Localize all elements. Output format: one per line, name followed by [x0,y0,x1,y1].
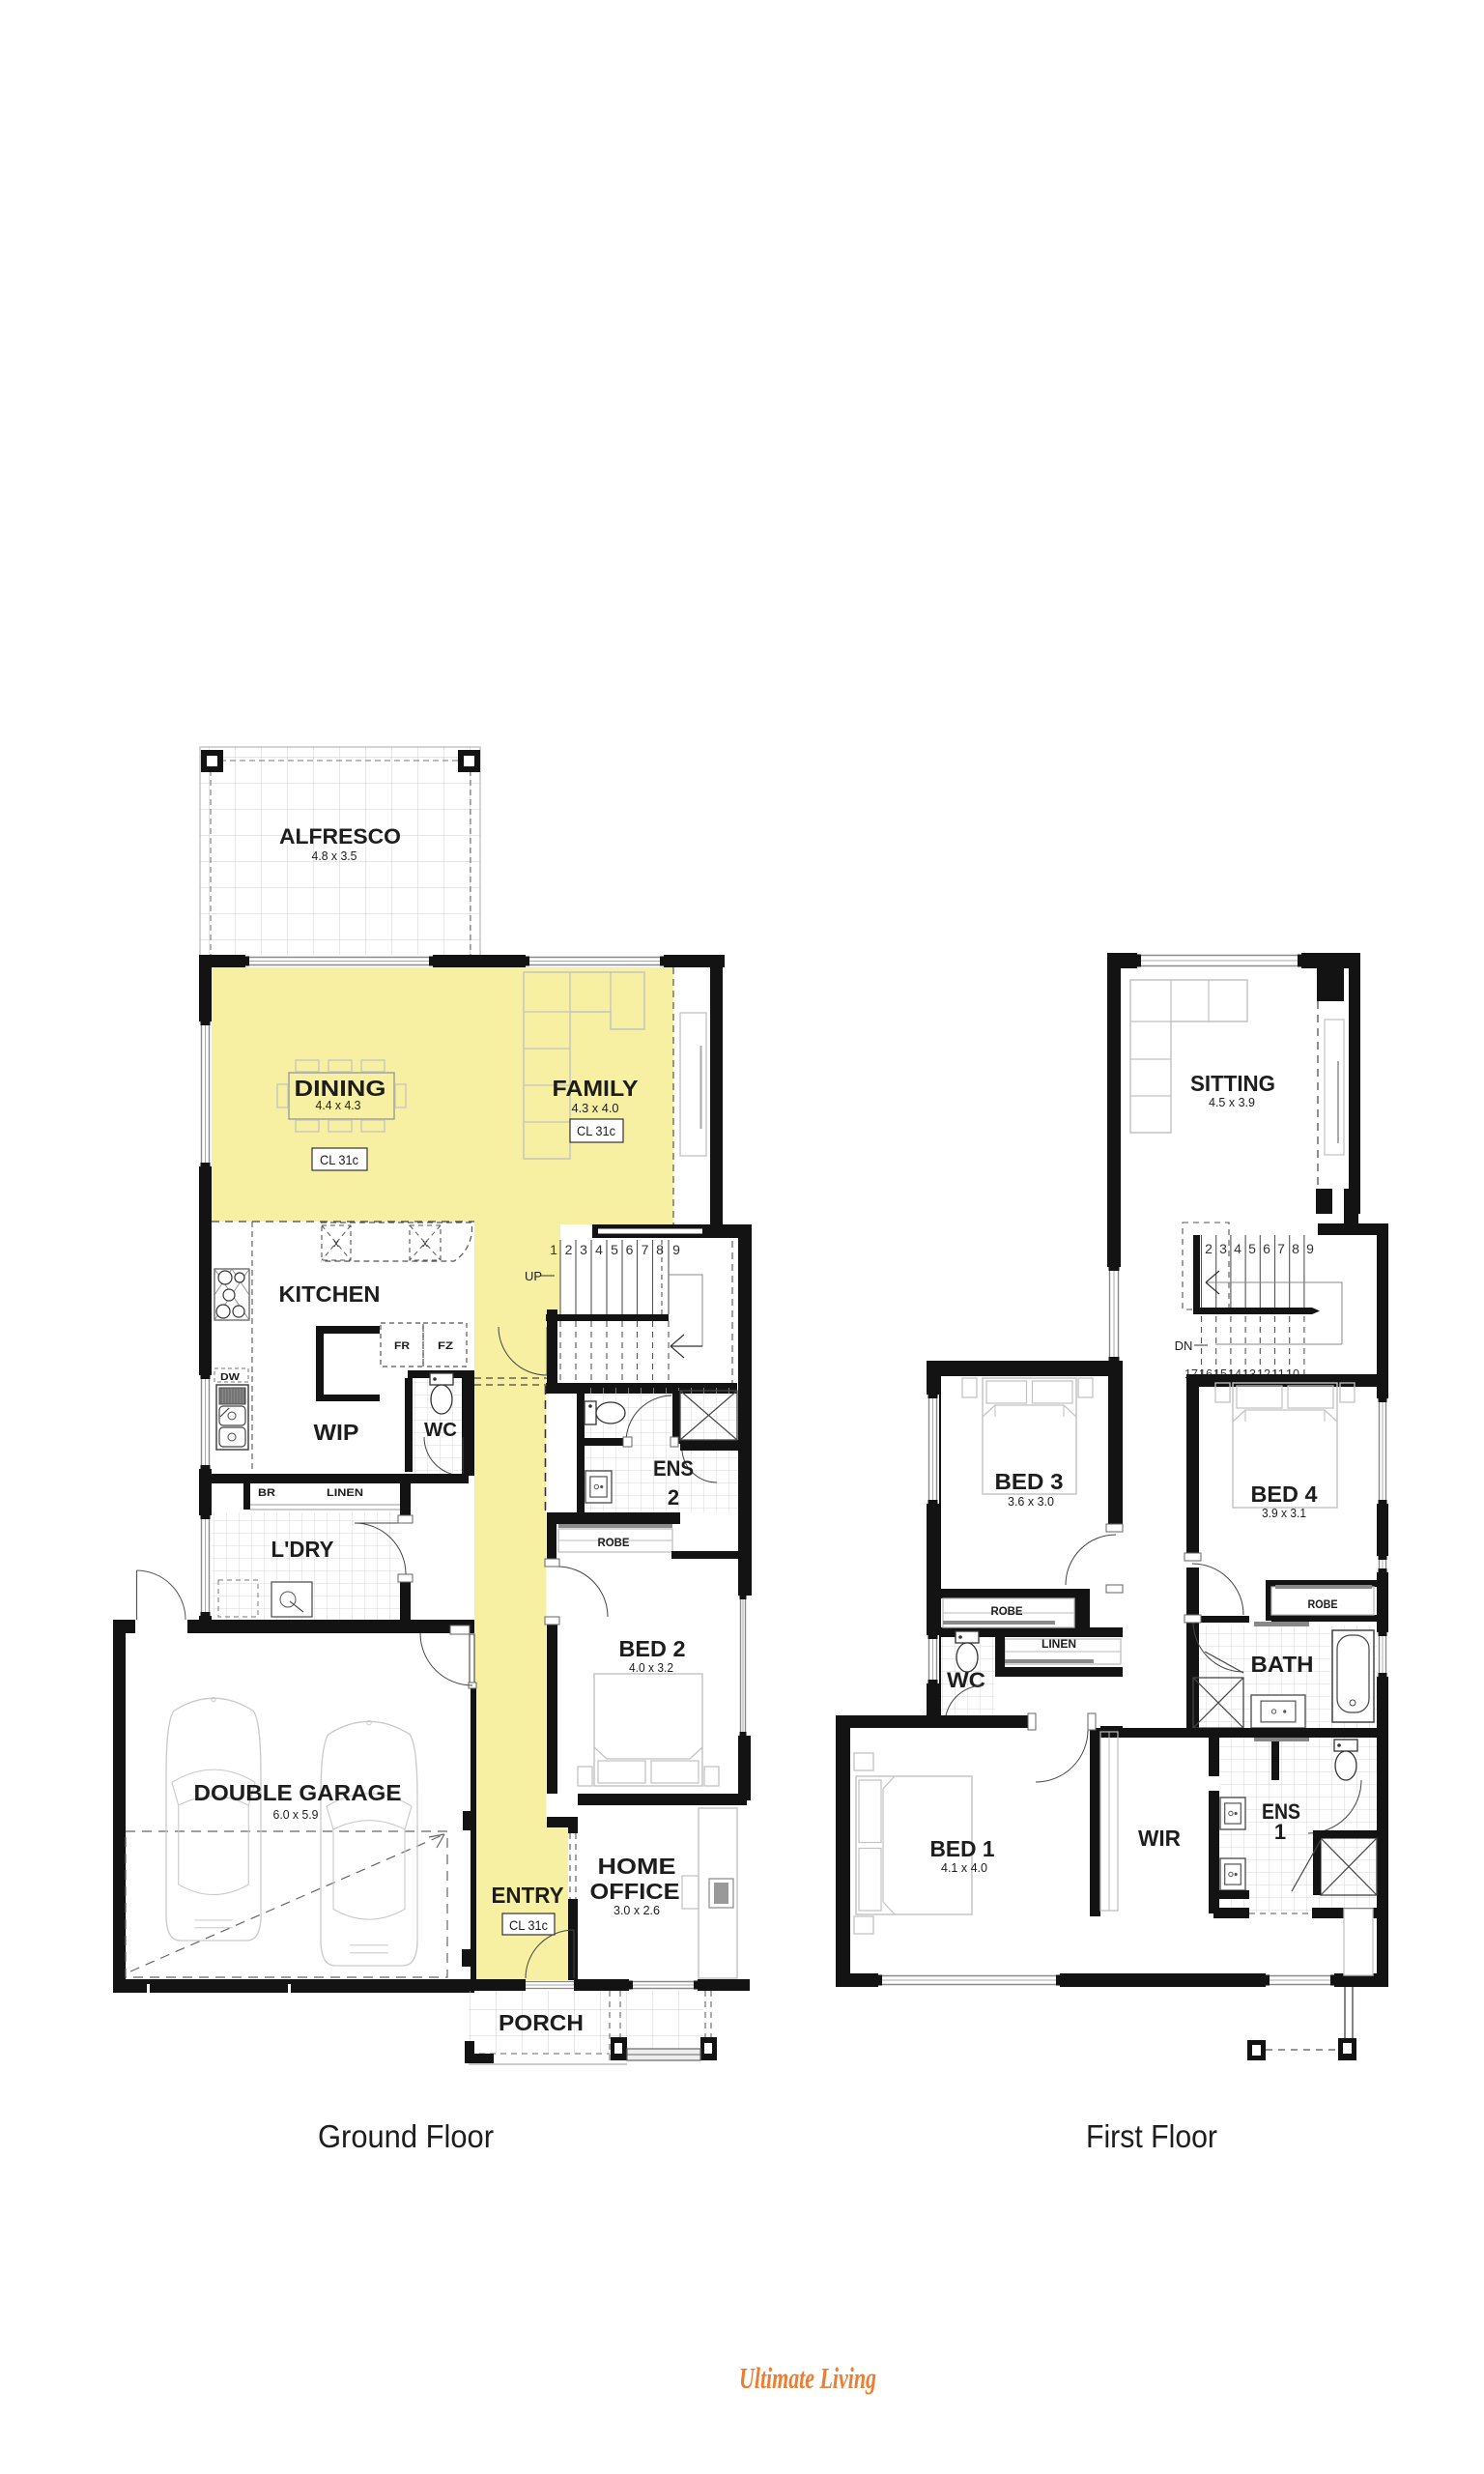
svg-text:OFFICE: OFFICE [590,1879,680,1904]
svg-text:DOUBLE GARAGE: DOUBLE GARAGE [194,1780,402,1805]
svg-text:FAMILY: FAMILY [553,1076,639,1101]
svg-text:HOME: HOME [598,1854,676,1879]
svg-text:ENS: ENS [653,1456,694,1481]
svg-text:6: 6 [1263,1241,1270,1256]
svg-text:3.6 x 3.0: 3.6 x 3.0 [1008,1494,1054,1509]
svg-text:3: 3 [580,1242,587,1257]
svg-text:UP: UP [525,1269,542,1283]
svg-text:9: 9 [1306,1241,1314,1256]
svg-text:2: 2 [668,1485,679,1510]
svg-text:3: 3 [1219,1241,1227,1256]
svg-text:BED 4: BED 4 [1251,1482,1318,1507]
svg-text:CL 31c: CL 31c [509,1917,548,1933]
svg-text:3.9 x 3.1: 3.9 x 3.1 [1262,1506,1306,1520]
svg-text:6: 6 [626,1242,634,1257]
svg-text:LINEN: LINEN [1042,1637,1076,1651]
svg-text:WC: WC [424,1420,457,1441]
svg-text:7: 7 [1277,1241,1285,1256]
svg-text:DN: DN [1175,1338,1193,1353]
svg-text:BATH: BATH [1251,1652,1314,1677]
svg-text:1: 1 [1274,1820,1286,1844]
svg-text:9: 9 [672,1242,680,1257]
svg-text:8: 8 [656,1242,664,1257]
svg-text:SITTING: SITTING [1190,1071,1275,1096]
svg-text:5: 5 [611,1242,618,1257]
svg-text:x: x [422,1238,428,1250]
svg-text:FZ: FZ [438,1340,453,1352]
svg-text:4.4 x 4.3: 4.4 x 4.3 [316,1098,361,1112]
svg-text:ENTRY: ENTRY [492,1883,564,1908]
svg-text:CL 31c: CL 31c [320,1152,358,1167]
svg-text:ROBE: ROBE [598,1536,630,1549]
svg-text:BED 3: BED 3 [995,1469,1064,1494]
svg-text:1: 1 [550,1242,557,1257]
svg-text:4.1 x 4.0: 4.1 x 4.0 [941,1860,987,1875]
svg-text:Ultimate Living: Ultimate Living [739,2361,876,2395]
svg-text:WC: WC [947,1668,985,1692]
svg-text:Ground Floor: Ground Floor [318,2118,494,2154]
svg-text:2: 2 [565,1242,573,1257]
svg-text:WIP: WIP [314,1420,359,1445]
svg-text:First Floor: First Floor [1086,2118,1217,2154]
svg-text:BR: BR [258,1487,275,1499]
svg-text:4.3 x 4.0: 4.3 x 4.0 [572,1101,619,1115]
svg-text:8: 8 [1292,1241,1299,1256]
svg-text:7: 7 [642,1242,649,1257]
svg-text:LINEN: LINEN [327,1487,363,1499]
svg-text:BED 1: BED 1 [930,1836,995,1861]
svg-text:x: x [333,1238,339,1250]
svg-text:ROBE: ROBE [991,1604,1023,1618]
svg-text:4.0 x 3.2: 4.0 x 3.2 [629,1660,673,1675]
svg-text:WIR: WIR [1138,1826,1181,1851]
svg-text:ROBE: ROBE [1308,1597,1338,1611]
svg-text:4.8 x 3.5: 4.8 x 3.5 [312,849,357,863]
svg-text:BED 2: BED 2 [619,1636,686,1661]
svg-text:FR: FR [394,1340,410,1352]
svg-text:4: 4 [1234,1241,1241,1256]
svg-text:ALFRESCO: ALFRESCO [279,824,401,849]
svg-text:4.5 x 3.9: 4.5 x 3.9 [1209,1095,1255,1109]
svg-text:L'DRY: L'DRY [271,1537,334,1562]
svg-text:4: 4 [595,1242,603,1257]
svg-text:DW: DW [220,1372,241,1383]
svg-text:3.0 x 2.6: 3.0 x 2.6 [614,1903,660,1917]
svg-text:5: 5 [1248,1241,1256,1256]
svg-text:KITCHEN: KITCHEN [279,1281,381,1307]
svg-text:CL 31c: CL 31c [577,1123,615,1138]
svg-text:2: 2 [1205,1241,1213,1256]
svg-text:PORCH: PORCH [499,2010,584,2035]
svg-text:6.0 x 5.9: 6.0 x 5.9 [273,1807,319,1822]
